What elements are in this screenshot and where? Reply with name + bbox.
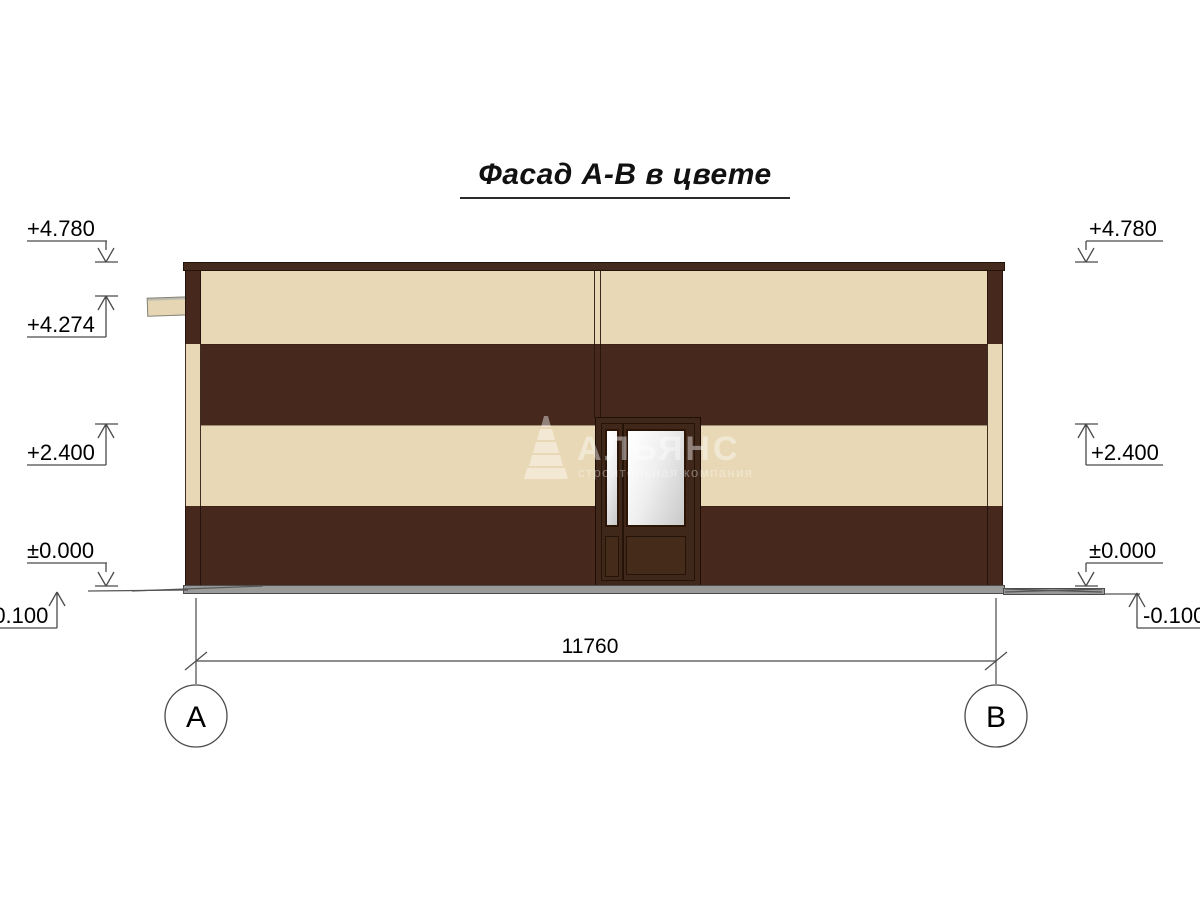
elevation-value-zero-left: ±0.000	[27, 538, 94, 563]
ramp-hatch-right	[1005, 589, 1102, 592]
elevation-value-zero-right: ±0.000	[1089, 538, 1156, 563]
watermark-subtitle: строительная компания	[578, 465, 753, 480]
elevation-marks-left: +4.780 +4.274 +2.400 ±0.000 -0.100	[0, 216, 118, 628]
elevation-value-ground-left: -0.100	[0, 603, 48, 628]
ground-lines	[88, 586, 1140, 594]
axis-label-b: В	[986, 701, 1006, 734]
linework-overlay: +4.780 +4.274 +2.400 ±0.000 -0.100 +4.78…	[0, 0, 1200, 900]
watermark-name: АЛЬЯНС	[577, 430, 741, 468]
elevation-value-doorhead-left: +2.400	[27, 440, 95, 465]
elevation-mark-zero-left	[27, 563, 118, 586]
dimension-and-axes: 11760 А В	[165, 598, 1027, 747]
elevation-mark-zero-right	[1075, 563, 1163, 586]
axis-label-a: А	[186, 701, 206, 734]
elevation-mark-parapet-left	[27, 241, 118, 262]
elevation-marks-right: +4.780 +2.400 ±0.000 -0.100	[1075, 216, 1200, 628]
watermark: АЛЬЯНС строительная компания	[524, 416, 753, 480]
elevation-value-scupper-left: +4.274	[27, 312, 95, 337]
elevation-value-doorhead-right: +2.400	[1091, 440, 1159, 465]
stepped-pyramid-icon	[524, 416, 568, 479]
elevation-value-ground-right: -0.100	[1143, 603, 1200, 628]
drawing-canvas: Фасад А-В в цвете	[0, 0, 1200, 900]
ground-ramp-left	[132, 586, 263, 591]
elevation-mark-parapet-right	[1075, 241, 1163, 262]
elevation-value-parapet-left: +4.780	[27, 216, 95, 241]
dimension-label: 11760	[562, 635, 619, 658]
elevation-value-parapet-right: +4.780	[1089, 216, 1157, 241]
